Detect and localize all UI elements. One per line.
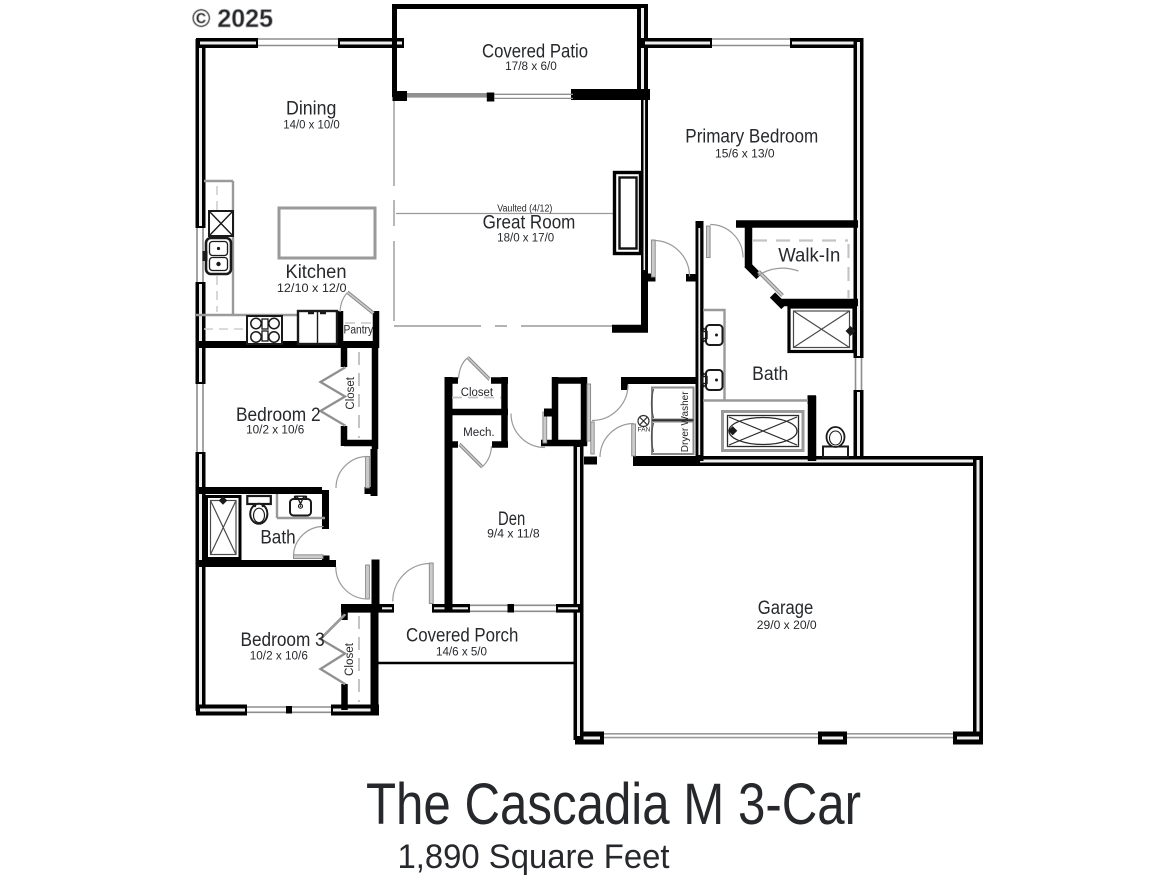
svg-text:Covered Patio: Covered Patio	[482, 42, 588, 63]
svg-text:1,890 Square Feet: 1,890 Square Feet	[398, 838, 671, 876]
svg-text:Bedroom 3: Bedroom 3	[241, 630, 325, 651]
svg-text:10/2 x 10/6: 10/2 x 10/6	[250, 651, 308, 663]
svg-text:Den: Den	[498, 509, 525, 530]
svg-text:Covered Porch: Covered Porch	[406, 626, 518, 647]
svg-text:14/0 x 10/0: 14/0 x 10/0	[283, 120, 339, 132]
svg-text:Closet: Closet	[344, 642, 356, 676]
svg-text:Dryer: Dryer	[680, 427, 691, 452]
svg-text:Bath: Bath	[260, 528, 295, 549]
svg-text:18/0 x 17/0: 18/0 x 17/0	[497, 233, 554, 245]
svg-text:Bedroom 2: Bedroom 2	[236, 405, 321, 426]
svg-text:The Cascadia M 3-Car: The Cascadia M 3-Car	[366, 772, 861, 837]
svg-text:15/6 x 13/0: 15/6 x 13/0	[715, 149, 775, 161]
svg-text:Dining: Dining	[286, 99, 336, 120]
svg-text:29/0 x 20/0: 29/0 x 20/0	[757, 620, 817, 632]
svg-text:12/10 x 12/0: 12/10 x 12/0	[277, 283, 347, 295]
svg-text:© 2025: © 2025	[192, 5, 273, 33]
svg-text:Kitchen: Kitchen	[286, 262, 347, 283]
svg-text:Primary Bedroom: Primary Bedroom	[685, 127, 818, 148]
svg-text:10/2 x 10/6: 10/2 x 10/6	[246, 425, 304, 437]
svg-text:Pantry: Pantry	[344, 325, 374, 337]
svg-text:Closet: Closet	[345, 376, 357, 409]
svg-text:Bath: Bath	[752, 364, 788, 385]
svg-text:Closet: Closet	[461, 387, 494, 399]
svg-text:Walk-In: Walk-In	[778, 246, 840, 267]
svg-text:14/6 x 5/0: 14/6 x 5/0	[436, 647, 487, 659]
svg-text:17/8 x 6/0: 17/8 x 6/0	[505, 61, 557, 73]
svg-text:Great Room: Great Room	[483, 213, 576, 234]
svg-text:Mech.: Mech.	[463, 427, 495, 439]
svg-text:Garage: Garage	[758, 598, 813, 619]
svg-text:9/4 x 11/8: 9/4 x 11/8	[487, 529, 540, 541]
svg-text:FAN: FAN	[638, 427, 651, 434]
svg-text:Washer: Washer	[680, 391, 691, 426]
